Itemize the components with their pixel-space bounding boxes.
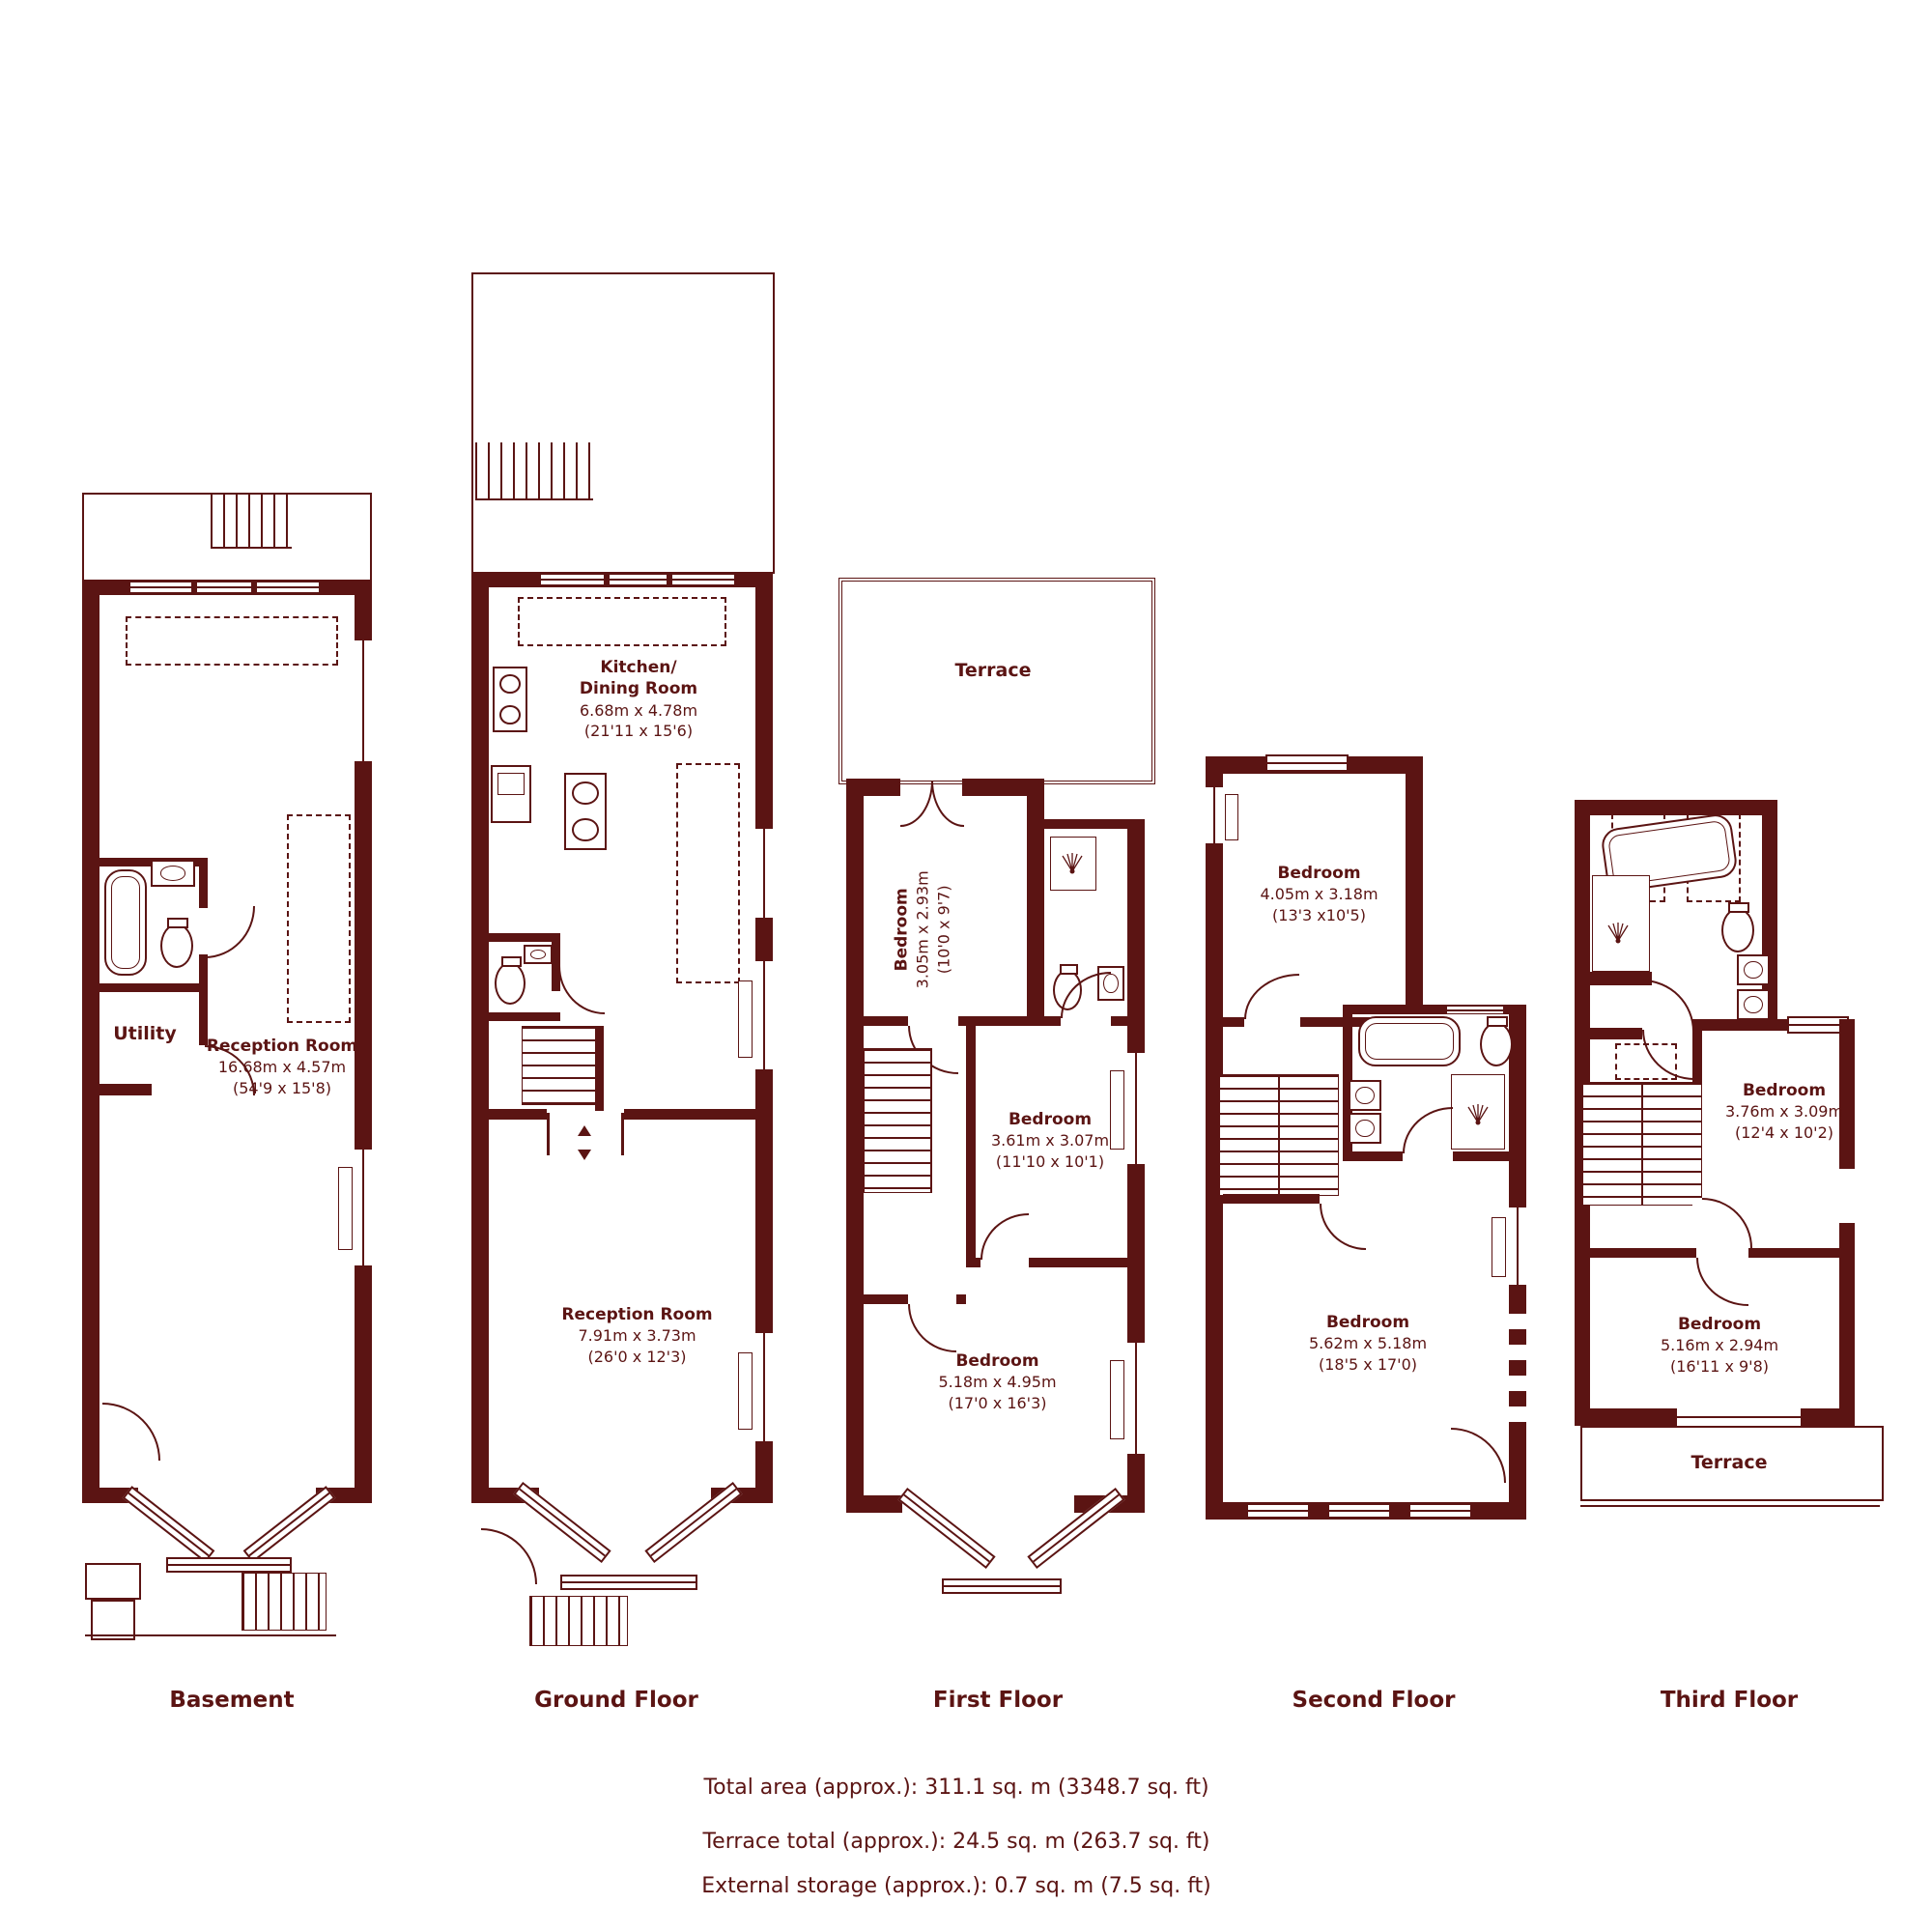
room-name: Bedroom bbox=[1285, 1312, 1451, 1333]
wall bbox=[624, 1109, 755, 1120]
room-dims-ft: (10'0 x 9'7) bbox=[934, 870, 954, 988]
wall-opening bbox=[1509, 1376, 1526, 1391]
toilet-icon bbox=[1721, 908, 1754, 952]
door-arc bbox=[931, 781, 964, 827]
sink-icon bbox=[1737, 989, 1770, 1020]
room-label-bedroom2: Bedroom 3.61m x 3.07m (11'10 x 10'1) bbox=[978, 1109, 1122, 1172]
room-label-bedroom-vertical: Bedroom 3.05m x 2.93m (10'0 x 9'7) bbox=[838, 831, 1008, 1029]
sink-icon bbox=[151, 860, 195, 887]
wall bbox=[1801, 1408, 1855, 1426]
door-opening bbox=[908, 1294, 956, 1304]
shutter-icon bbox=[338, 1167, 353, 1250]
room-dims-m: 6.68m x 4.78m bbox=[537, 700, 740, 721]
stairs bbox=[522, 1026, 597, 1105]
door-leaf bbox=[547, 1113, 550, 1155]
wall bbox=[846, 1495, 902, 1513]
window bbox=[1265, 754, 1349, 772]
external-storage-text: External storage (approx.): 0.7 sq. m (7… bbox=[618, 1872, 1294, 1901]
door-arc bbox=[481, 1528, 537, 1584]
sink-icon bbox=[1737, 954, 1770, 985]
shower-icon bbox=[1058, 848, 1087, 877]
room-name: Bedroom bbox=[1244, 863, 1394, 884]
door-arc bbox=[102, 1403, 160, 1461]
wall bbox=[1575, 1028, 1642, 1039]
terrace-edge-line bbox=[1580, 1505, 1880, 1507]
toilet-icon bbox=[1480, 1022, 1513, 1066]
room-name: Bedroom bbox=[1633, 1314, 1806, 1335]
room-name: Bedroom bbox=[1712, 1080, 1857, 1101]
window bbox=[1127, 1343, 1145, 1454]
room-dims-ft: (21'11 x 15'6) bbox=[537, 721, 740, 741]
shutter-icon bbox=[1492, 1217, 1506, 1277]
wall bbox=[471, 587, 489, 1499]
window bbox=[1329, 1505, 1389, 1517]
wall bbox=[552, 933, 560, 991]
stair-direction-arrow-icon bbox=[578, 1125, 591, 1136]
door-arc bbox=[1244, 974, 1299, 1019]
door-arc bbox=[1702, 1198, 1752, 1248]
wall-opening bbox=[1509, 1314, 1526, 1329]
wall bbox=[595, 1026, 604, 1111]
bay-window bbox=[513, 1482, 611, 1563]
room-dims-ft: (16'11 x 9'8) bbox=[1633, 1356, 1806, 1377]
room-label-bedroom3: Bedroom 5.18m x 4.95m (17'0 x 16'3) bbox=[913, 1350, 1082, 1413]
room-label-bedroom2: Bedroom 5.16m x 2.94m (16'11 x 9'8) bbox=[1633, 1314, 1806, 1377]
wall bbox=[489, 1012, 560, 1021]
door-arc bbox=[900, 781, 933, 827]
window bbox=[1677, 1411, 1801, 1423]
bathtub-icon bbox=[104, 869, 147, 976]
wall-opening bbox=[1839, 1169, 1855, 1223]
stairs bbox=[1279, 1074, 1339, 1196]
room-name-line2: Dining Room bbox=[537, 678, 740, 699]
bay-window bbox=[243, 1486, 336, 1563]
stairs bbox=[241, 1573, 327, 1631]
kitchen-units-dashed bbox=[518, 597, 726, 646]
stairs bbox=[1582, 1082, 1642, 1206]
storage-dashed-outline bbox=[126, 616, 338, 666]
room-dims-m: 3.05m x 2.93m bbox=[914, 870, 934, 988]
room-name: Bedroom bbox=[892, 870, 913, 988]
ground-line bbox=[85, 1634, 336, 1636]
bay-window bbox=[644, 1482, 742, 1563]
room-dims-m: 7.91m x 3.73m bbox=[533, 1325, 741, 1346]
door-arc bbox=[1320, 1204, 1366, 1250]
shutter-icon bbox=[1110, 1360, 1124, 1439]
wall-opening bbox=[1509, 1345, 1526, 1360]
room-label: Bedroom 3.05m x 2.93m (10'0 x 9'7) bbox=[892, 870, 954, 988]
stairs bbox=[1219, 1074, 1279, 1196]
room-label-bedroom1: Bedroom 3.76m x 3.09m (12'4 x 10'2) bbox=[1712, 1080, 1857, 1143]
window bbox=[355, 1150, 372, 1265]
door-arc bbox=[205, 906, 255, 958]
window bbox=[1206, 787, 1223, 843]
window bbox=[1509, 1207, 1526, 1285]
window bbox=[355, 640, 372, 761]
floor-title-first: First Floor bbox=[896, 1685, 1099, 1716]
floor-title-second: Second Floor bbox=[1263, 1685, 1485, 1716]
room-dims-ft: (17'0 x 16'3) bbox=[913, 1393, 1082, 1413]
room-dims-m: 5.62m x 5.18m bbox=[1285, 1333, 1451, 1353]
room-name: Utility bbox=[97, 1022, 193, 1046]
window bbox=[755, 1333, 773, 1441]
external-storage-outline bbox=[85, 1563, 141, 1600]
door-leaf bbox=[621, 1113, 624, 1155]
room-dims-ft: (11'10 x 10'1) bbox=[978, 1151, 1122, 1172]
room-dims-m: 4.05m x 3.18m bbox=[1244, 884, 1394, 904]
total-area-text: Total area (approx.): 311.1 sq. m (3348.… bbox=[618, 1774, 1294, 1803]
room-dims-m: 3.61m x 3.07m bbox=[978, 1130, 1122, 1151]
stair-direction-arrow-icon bbox=[578, 1150, 591, 1160]
storage-dashed-outline bbox=[1615, 1043, 1677, 1080]
bay-window bbox=[897, 1488, 995, 1569]
stairs bbox=[475, 442, 593, 500]
room-name: Terrace bbox=[1647, 1451, 1811, 1475]
wall bbox=[191, 580, 197, 595]
wall bbox=[604, 572, 610, 587]
window bbox=[541, 575, 734, 584]
garden-outline bbox=[471, 272, 775, 574]
stairs bbox=[864, 1048, 932, 1193]
room-name: Bedroom bbox=[978, 1109, 1122, 1130]
door-arc bbox=[1403, 1107, 1453, 1153]
shutter-icon bbox=[738, 1352, 753, 1430]
shower-icon bbox=[1604, 918, 1633, 947]
room-label-reception-ground: Reception Room 7.91m x 3.73m (26'0 x 12'… bbox=[533, 1304, 741, 1367]
wall bbox=[489, 933, 560, 942]
room-dims-ft: (12'4 x 10'2) bbox=[1712, 1122, 1857, 1143]
room-name: Kitchen/ bbox=[537, 657, 740, 678]
storage-dashed-outline bbox=[287, 814, 351, 1023]
door-arc bbox=[980, 1213, 1029, 1260]
bay-window bbox=[123, 1486, 215, 1563]
wall bbox=[82, 595, 99, 1503]
wall bbox=[1575, 972, 1652, 985]
wall bbox=[1223, 1194, 1320, 1204]
hob-icon bbox=[493, 667, 527, 732]
room-label-utility: Utility bbox=[97, 1022, 193, 1046]
toilet-icon bbox=[495, 962, 526, 1005]
sink-icon bbox=[1349, 1113, 1381, 1144]
room-dims-ft: (18'5 x 17'0) bbox=[1285, 1354, 1451, 1375]
floor-title-ground: Ground Floor bbox=[500, 1685, 732, 1716]
wall bbox=[1027, 779, 1044, 1026]
bay-window bbox=[942, 1578, 1062, 1594]
wall bbox=[82, 1084, 152, 1095]
window bbox=[755, 829, 773, 918]
wall-opening bbox=[1509, 1406, 1526, 1422]
room-dims-m: 5.16m x 2.94m bbox=[1633, 1335, 1806, 1355]
door-arc bbox=[908, 1304, 956, 1352]
bathtub-icon bbox=[1358, 1016, 1461, 1066]
toilet-icon bbox=[160, 923, 193, 968]
room-dims-ft: (54'9 x 15'8) bbox=[205, 1078, 359, 1098]
wall bbox=[1575, 800, 1777, 815]
wall bbox=[667, 572, 672, 587]
oven-icon bbox=[491, 765, 531, 823]
window bbox=[1248, 1505, 1308, 1517]
room-label-kitchen: Kitchen/ Dining Room 6.68m x 4.78m (21'1… bbox=[537, 657, 740, 741]
door-opening bbox=[1696, 1248, 1748, 1258]
window bbox=[130, 582, 319, 592]
room-name: Reception Room bbox=[533, 1304, 741, 1325]
room-name: Bedroom bbox=[913, 1350, 1082, 1372]
bay-window bbox=[166, 1557, 292, 1573]
door-arc bbox=[1451, 1428, 1506, 1483]
wall bbox=[489, 1109, 547, 1120]
door-arc bbox=[558, 966, 605, 1014]
room-label-reception: Reception Room 16.68m x 4.57m (54'9 x 15… bbox=[205, 1036, 359, 1098]
door-arc bbox=[1696, 1258, 1748, 1306]
wall bbox=[199, 858, 208, 908]
room-label-bedroom2: Bedroom 5.62m x 5.18m (18'5 x 17'0) bbox=[1285, 1312, 1451, 1375]
wall bbox=[966, 1016, 976, 1267]
storage-dashed-outline bbox=[676, 763, 740, 983]
stairs bbox=[1642, 1082, 1702, 1206]
room-label-terrace: Terrace bbox=[1647, 1451, 1811, 1475]
shutter-icon bbox=[738, 980, 753, 1058]
floor-title-third: Third Floor bbox=[1623, 1685, 1835, 1716]
stairs bbox=[529, 1596, 628, 1646]
room-label-bedroom1: Bedroom 4.05m x 3.18m (13'3 x10'5) bbox=[1244, 863, 1394, 925]
wall bbox=[1575, 1408, 1677, 1426]
island-hob-icon bbox=[564, 773, 607, 850]
room-dims-ft: (26'0 x 12'3) bbox=[533, 1347, 741, 1367]
wall bbox=[1406, 774, 1423, 1014]
room-dims-m: 5.18m x 4.95m bbox=[913, 1372, 1082, 1392]
wall bbox=[251, 580, 257, 595]
window bbox=[755, 961, 773, 1069]
wall bbox=[864, 779, 900, 796]
window bbox=[1127, 1053, 1145, 1164]
shutter-icon bbox=[1225, 794, 1238, 840]
room-dims-m: 3.76m x 3.09m bbox=[1712, 1101, 1857, 1122]
wall bbox=[99, 983, 208, 992]
room-label-terrace: Terrace bbox=[896, 659, 1090, 683]
room-name: Reception Room bbox=[205, 1036, 359, 1057]
room-dims-m: 16.68m x 4.57m bbox=[205, 1057, 359, 1077]
door-opening bbox=[1692, 1198, 1702, 1248]
window bbox=[1410, 1505, 1470, 1517]
floorplan-canvas: Utility Reception Room 16.68m x 4.57m (5… bbox=[0, 0, 1932, 1932]
stairs bbox=[211, 495, 292, 549]
sink-icon bbox=[1349, 1080, 1381, 1111]
shutter-icon bbox=[1110, 1070, 1124, 1150]
terrace-total-text: Terrace total (approx.): 24.5 sq. m (263… bbox=[618, 1828, 1294, 1857]
sink-icon bbox=[524, 945, 553, 964]
floor-title-basement: Basement bbox=[135, 1685, 328, 1716]
bay-window bbox=[560, 1575, 697, 1590]
room-name: Terrace bbox=[896, 659, 1090, 683]
shower-icon bbox=[1463, 1099, 1492, 1128]
door-arc bbox=[1642, 980, 1694, 1032]
room-dims-ft: (13'3 x10'5) bbox=[1244, 905, 1394, 925]
window bbox=[1447, 1007, 1503, 1013]
